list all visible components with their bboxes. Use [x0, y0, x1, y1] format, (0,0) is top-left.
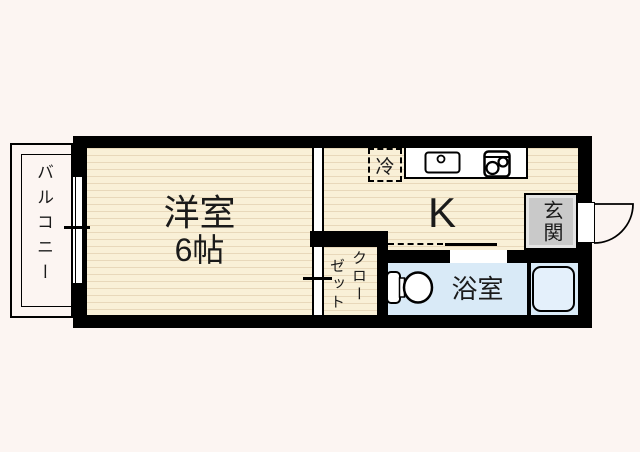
kitchen-label: K [324, 190, 560, 236]
western-room-label: 洋室 [87, 193, 312, 233]
bathroom-label: 浴室 [440, 275, 515, 304]
kitchen-boundary-dashed-line [388, 243, 443, 245]
wall-bathtub-divider [527, 263, 531, 315]
kitchen-boundary-solid-line [445, 243, 497, 246]
refrigerator-label: 冷 [375, 152, 394, 179]
room-kitchen-opening [312, 148, 324, 231]
bathtub-icon [532, 266, 575, 312]
toilet-icon [385, 269, 435, 307]
balcony-label: バルコニー [35, 163, 52, 309]
western-room-size-label: 6帖 [87, 233, 312, 268]
closet-label-column-left: ゼット [329, 258, 344, 316]
closet-door [312, 247, 324, 315]
balcony-window-line [75, 177, 76, 283]
sink-icon [424, 151, 461, 174]
bathroom-door-opening [450, 250, 507, 263]
wall-bottom [73, 315, 592, 328]
stove-icon [483, 150, 511, 178]
closet-label-column-right: クロー [351, 250, 366, 314]
floor-plan: バルコニー 冷 玄関 [0, 0, 640, 452]
refrigerator-box: 冷 [368, 148, 402, 182]
entrance-door-swing-icon [593, 199, 639, 248]
balcony-window [71, 177, 84, 283]
